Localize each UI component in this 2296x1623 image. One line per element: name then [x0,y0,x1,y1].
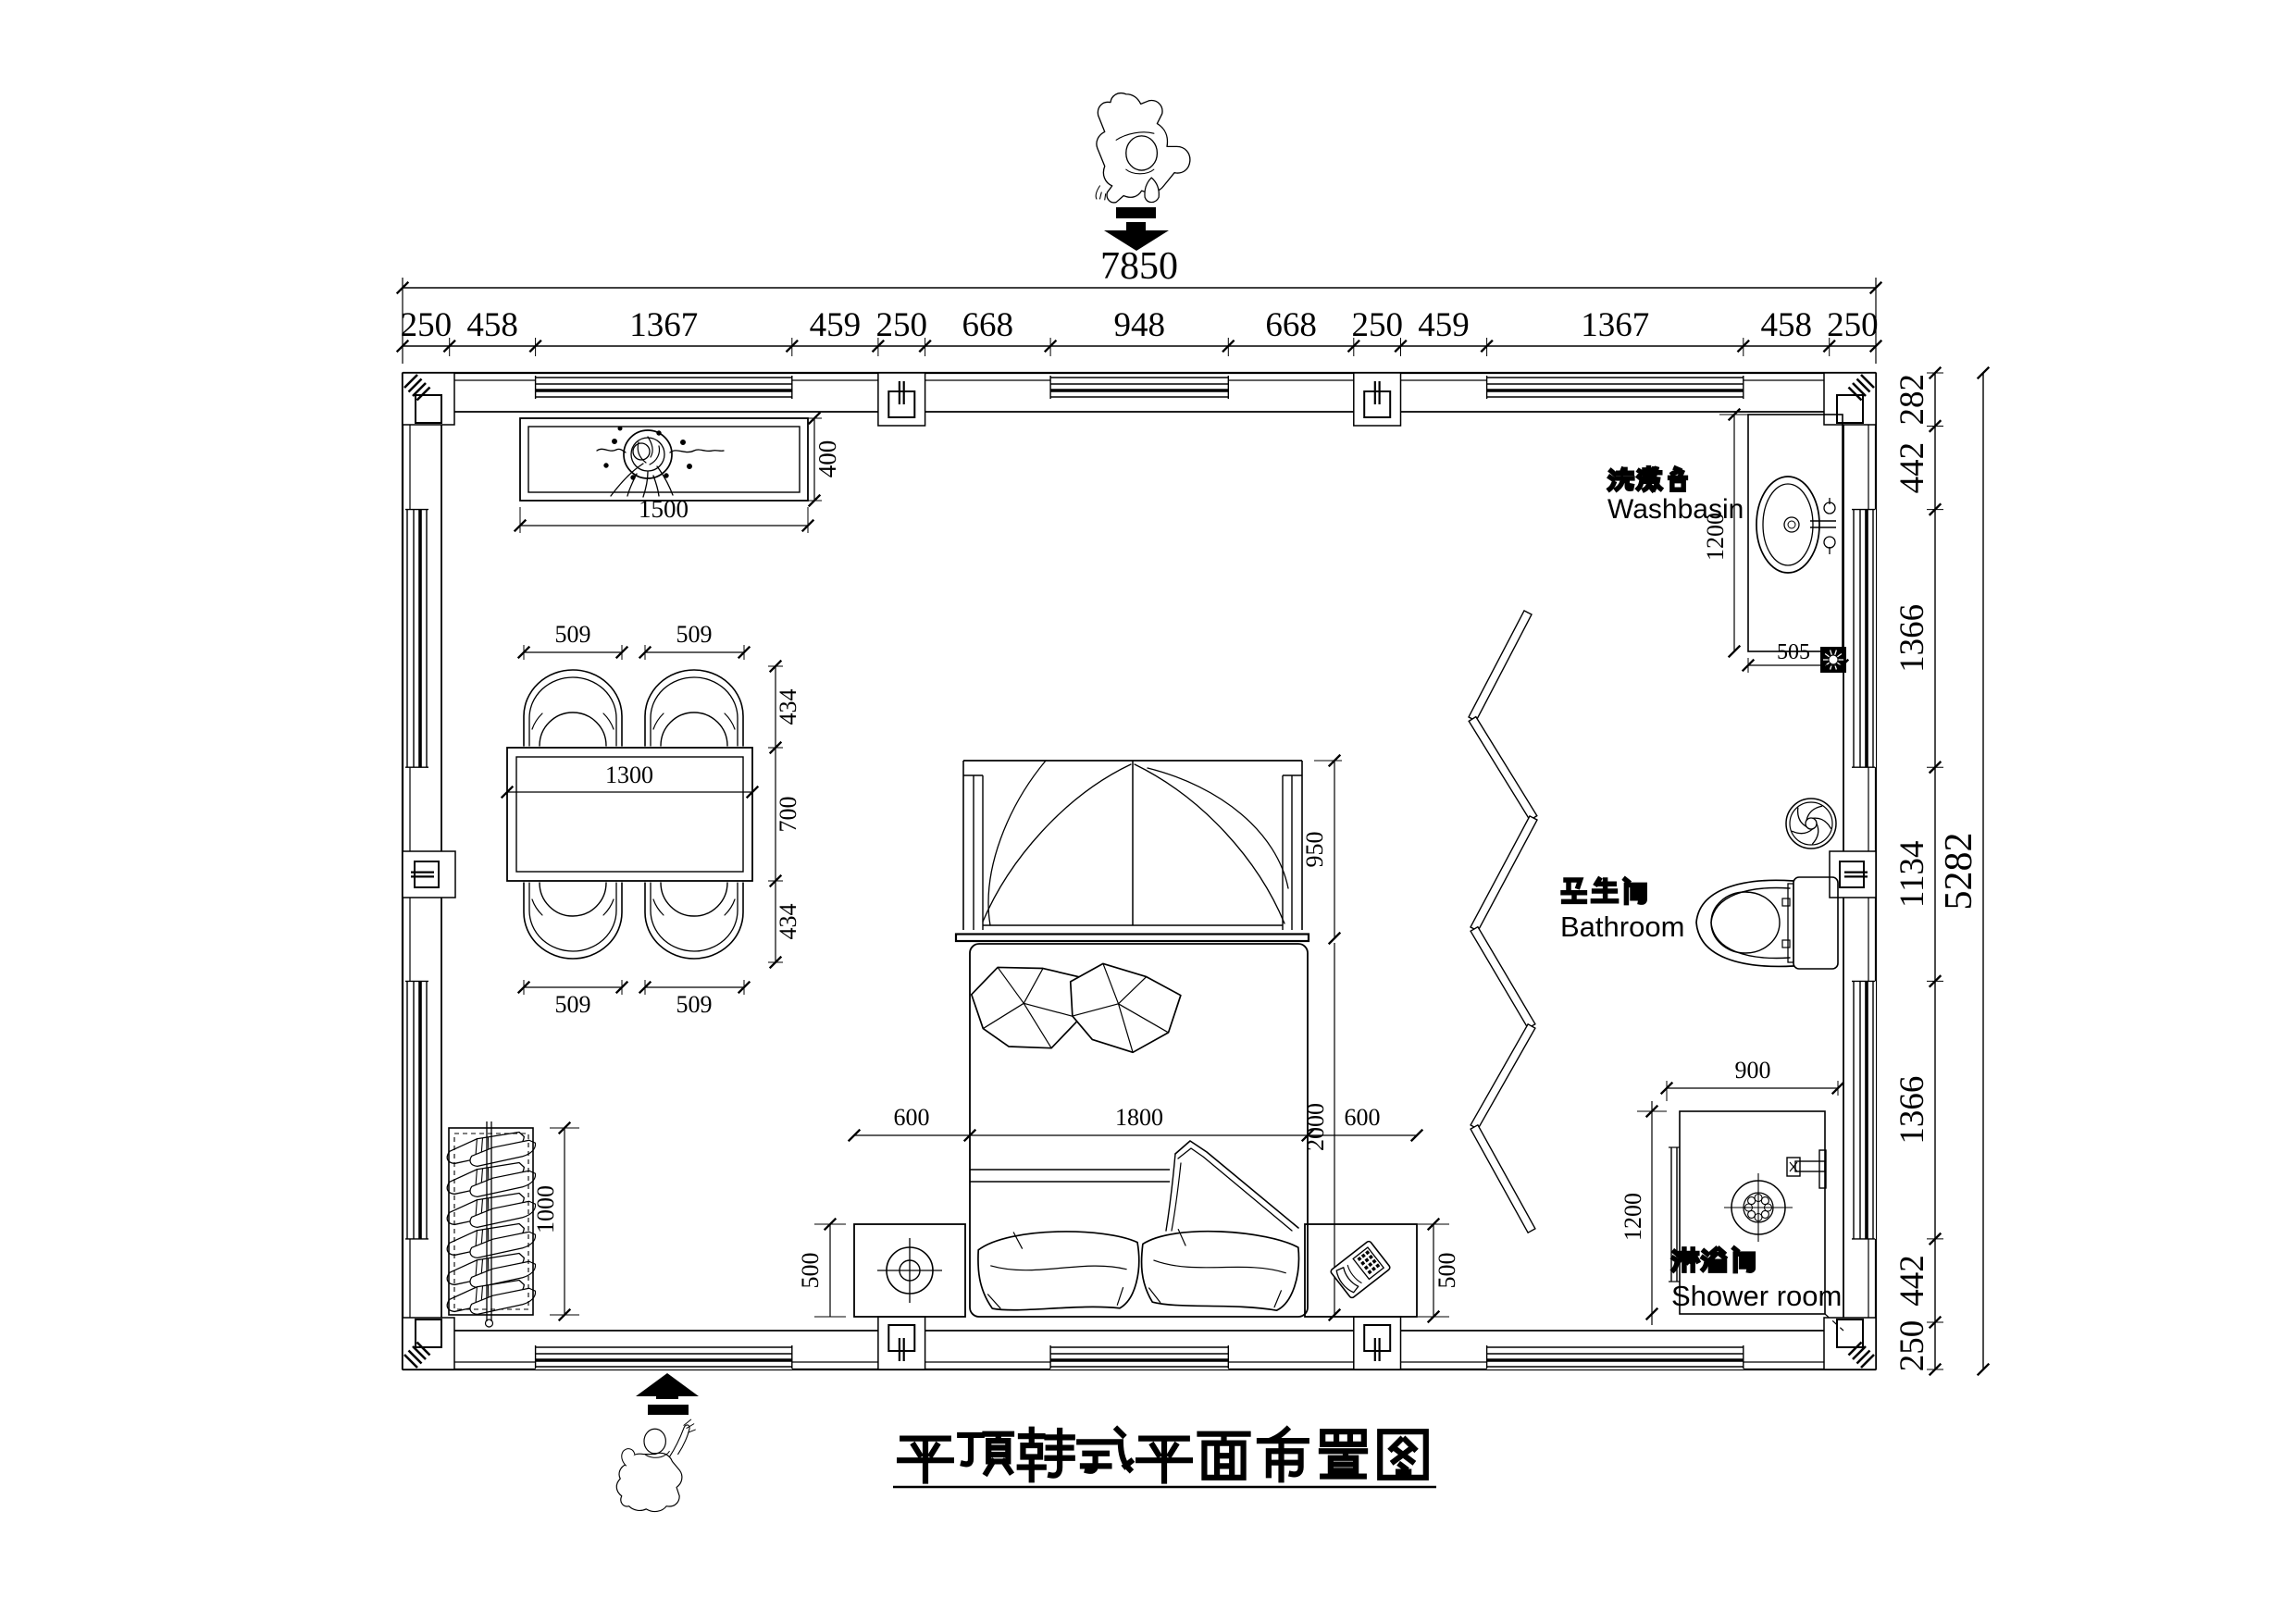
svg-text:434: 434 [775,689,801,725]
svg-text:459: 459 [810,306,862,344]
svg-text:442: 442 [1893,1255,1931,1307]
svg-text:1367: 1367 [629,306,698,344]
svg-text:459: 459 [1418,306,1470,344]
svg-text:509: 509 [676,991,713,1018]
svg-text:900: 900 [1735,1057,1771,1084]
svg-text:458: 458 [466,306,518,344]
svg-text:1300: 1300 [605,762,653,788]
svg-text:505: 505 [1777,640,1810,664]
svg-text:500: 500 [1433,1253,1460,1289]
svg-text:Washbasin: Washbasin [1607,494,1744,525]
svg-text:700: 700 [775,797,801,833]
svg-text:250: 250 [1827,306,1879,344]
svg-text:282: 282 [1893,374,1931,426]
svg-text:1366: 1366 [1893,1076,1931,1145]
svg-text:1134: 1134 [1893,840,1931,908]
svg-text:250: 250 [876,306,928,344]
svg-text:948: 948 [1113,306,1165,344]
svg-text:668: 668 [1265,306,1317,344]
svg-text:1366: 1366 [1893,604,1931,673]
svg-text:1000: 1000 [532,1185,559,1233]
svg-text:500: 500 [797,1253,824,1289]
svg-text:1200: 1200 [1620,1193,1646,1241]
svg-text:400: 400 [813,440,841,478]
svg-text:442: 442 [1893,442,1931,493]
svg-text:509: 509 [555,991,591,1018]
svg-text:2000: 2000 [1302,1103,1329,1151]
svg-text:1500: 1500 [639,495,689,523]
svg-text:509: 509 [676,621,713,648]
svg-text:Shower room: Shower room [1671,1280,1842,1312]
svg-text:Bathroom: Bathroom [1560,911,1684,943]
svg-text:668: 668 [962,306,1014,344]
svg-text:250: 250 [1893,1320,1931,1372]
svg-text:509: 509 [555,621,591,648]
svg-text:434: 434 [775,904,801,940]
svg-text:950: 950 [1301,832,1328,868]
svg-text:5282: 5282 [1938,833,1980,911]
svg-text:7850: 7850 [1100,245,1178,288]
svg-text:600: 600 [894,1104,930,1131]
svg-text:1367: 1367 [1581,306,1649,344]
svg-text:250: 250 [1351,306,1403,344]
svg-text:600: 600 [1345,1104,1381,1131]
svg-text:458: 458 [1761,306,1813,344]
svg-text:1800: 1800 [1115,1104,1163,1131]
svg-text:250: 250 [401,306,453,344]
